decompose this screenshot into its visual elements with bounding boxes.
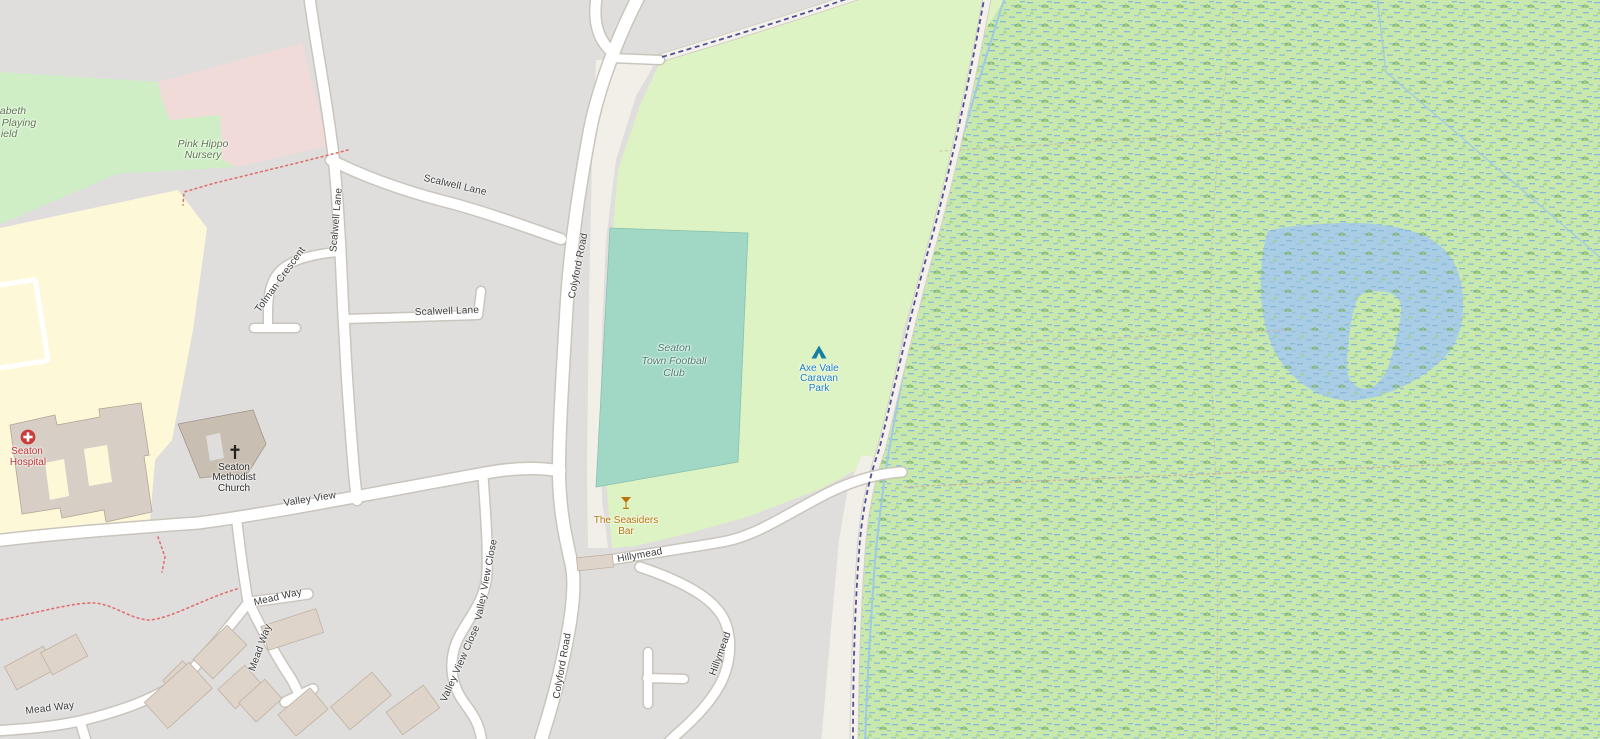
bar-label-line2: Bar bbox=[618, 527, 634, 537]
bar-label-line1: The Seasiders bbox=[594, 516, 658, 526]
nursery-label-line1: Pink Hippo bbox=[178, 139, 229, 150]
football-club-label-line3: Club bbox=[663, 368, 685, 379]
nursery-label-line2: Nursery bbox=[185, 150, 222, 161]
hospital-cross-icon bbox=[20, 429, 36, 445]
map-canvas[interactable]: abeth Playing ield Pink Hippo Nursery Sc… bbox=[0, 0, 1600, 739]
hospital-label-line2: Hospital bbox=[10, 458, 46, 468]
hospital-courtyard bbox=[84, 445, 112, 486]
campsite-icon bbox=[811, 345, 828, 360]
church-cross-icon bbox=[228, 444, 243, 460]
bar-glass-icon bbox=[619, 496, 633, 511]
church-label-line2: Methodist bbox=[212, 473, 255, 483]
playing-field-label-line3: ield bbox=[1, 129, 17, 140]
playing-field-label-line1: abeth bbox=[0, 106, 26, 117]
football-club-label-line2: Town Football bbox=[642, 356, 707, 367]
playing-field-label-line2: Playing bbox=[2, 118, 36, 129]
hospital-label-line1: Seaton bbox=[11, 447, 43, 457]
football-club-label-line1: Seaton bbox=[657, 343, 690, 354]
caravan-park-label-line3: Park bbox=[809, 384, 830, 394]
church-label-line3: Church bbox=[218, 484, 250, 494]
